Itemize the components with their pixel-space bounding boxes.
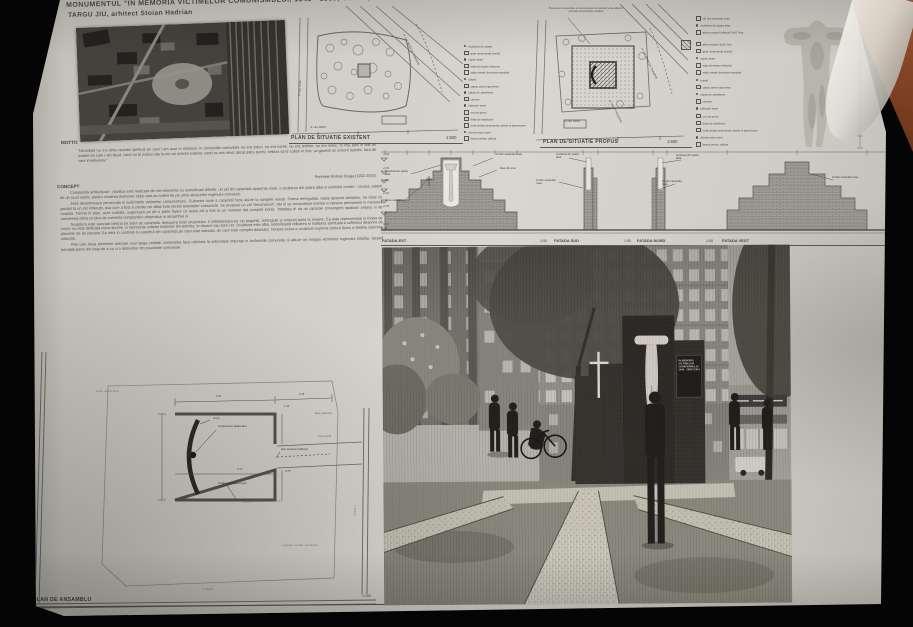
proposed-plan-scale: 1:500 [667,140,677,145]
legend-item: sculptura din piatra [468,44,492,48]
ansamblu-path-top-label: alee asfaltata [96,390,119,393]
legend-item: copac tanar [700,56,715,60]
facade-annotation-wall: zid din caramida rosie [496,153,524,156]
legend-item: rond peisaj ornamental, pietris si asper… [703,128,758,132]
facade-annotation-cross: cruce metalica [385,199,411,202]
facade-sud-scale: 1:50 [624,239,631,243]
legend-item: alee propusa (criblura) 3x61 l/mp [703,31,744,35]
legend-item: stalp metalic iluminare stradala [703,71,741,75]
ansamblu-path-right1-label: alee existenta [315,412,332,415]
legend-item: stalp metalic iluminare stradala [471,71,509,75]
legend-item: directie auto rutier [700,135,722,139]
legend-item: cismea [471,97,480,101]
plaque-text: IN MEMORIA VICTIMELOR COMUNISMULUI 1945 … [679,359,701,372]
ansamblu-sculpture-label: sculptura din piatra alba [218,425,248,428]
legend-item: stalp iluminare electrica [703,63,732,67]
legend-item: copac tanar [468,57,483,61]
ansamblu-title: PLAN DE ANSAMBLU [33,598,92,604]
legend-item: capac de canalizare [468,90,493,94]
legend-item: capac de canalizare [700,92,725,96]
ansamblu-dim: 0.75 [299,393,304,396]
legend-item: banca pentru odihna [703,143,729,147]
legend-item: capac camin apometru [471,84,499,88]
legend-item: cos de gunoi [703,114,719,118]
ansamblu-dim: 4.70 [237,468,242,471]
level-value: ±0.00 [383,223,389,226]
proposed-cad-a: nr. cad. 39261 [564,121,580,124]
ansamblu-scale: 1:100 [362,594,371,598]
proposed-plan-title: PLAN DE SITUATIE PROPUS [543,140,618,146]
existing-plan-scale: 1:500 [446,136,456,141]
legend-item: capac camin apometru [703,85,731,89]
legend-swatch [681,40,691,50]
motto-heading: MOTTO [61,140,78,146]
facade-annotation-wall: zid din caramida rosie [662,180,686,186]
ansamblu-path-proposed-label: alee propusa (criblura) [281,448,311,451]
ansamblu-dim: 1.10 [284,405,289,408]
presentation-sheet: MONUMENTUL "IN MEMORIA VICTIMELOR COMUNI… [0,0,913,627]
facade-est-scale: 1:50 [540,239,547,243]
level-value: +0.45 [383,205,389,208]
level-value: +4.45 [383,153,389,156]
legend-item: gard ornamental (vechi) [471,51,501,55]
ansamblu-green-bottom-label: spatiu verde existent [283,544,318,547]
existing-plan-title: PLAN DE SITUATIE EXISTENT [291,136,370,142]
legend-item: banca pentru odihna [471,137,497,141]
legend-item: rond peisaj ornamental, pietris si asper… [471,123,526,127]
site-plan-proposed-drawing [528,4,688,146]
ansamblu-dim: 2.75 [285,470,290,473]
facade-nord-caption: FATADA NORD [637,239,665,244]
facade-vest-scale: 1:50 [893,239,900,243]
legend-item: cismea [703,99,712,103]
facade-annotation-sculpture: sculptura din piatra alba [676,154,702,160]
concept-heading: CONCEPT [57,184,80,190]
proposed-plan-underline [540,147,692,148]
ansamblu-sidewalk-bottom-label: trotuar [202,588,214,591]
legend-item: gard ornamental (vechi) [703,49,733,53]
photomontage: IN MEMORIA VICTIMELOR COMUNISMULUI 1945 … [382,245,792,606]
photographed-sheet: MONUMENTUL "IN MEMORIA VICTIMELOR COMUNI… [0,0,913,627]
facade-est-caption: FATADA EST [382,239,406,244]
facade-annotation-sculpture: sculptura din piatra alba [556,153,582,159]
motto-attribution: Parintele Roman Braga (1922-2015) [256,174,376,181]
ansamblu-cross-label: cruce [213,417,220,420]
ansamblu-dim: 5.00 [216,395,221,398]
existing-cad-b: nr. cad. 39261 [310,127,326,130]
ansamblu-wall-label: zid din caramida propus [218,482,278,485]
aerial-photo [76,20,289,142]
legend-item: bolard [468,77,476,81]
level-value: +1.50 [383,192,389,195]
ansamblu-drawing [30,352,386,614]
legend-item: directie auto rutier [468,130,490,134]
facade-annotation-letters: litere din inox [500,167,528,170]
plaque-line: 1945 - 1989 GORJ [679,369,701,372]
legend-item: stalp iluminare electrica [471,64,500,68]
level-value: +2.50 [383,179,389,182]
facades-drawing [381,150,908,246]
ansamblu-dim: 0.70 [186,452,191,455]
ansamblu-sidewalk-right-label: trotuar [353,505,356,517]
facade-annotation-sculpture: sculptura din piatra alba [385,170,411,176]
facade-nord-scale: 1:50 [706,239,713,243]
legend-item: firida de distributie [471,117,494,121]
facade-annotation-wall: zid din caramida rosie [832,176,860,179]
legend-item: bolard [700,78,708,82]
legend-item: indicator rutier [700,107,718,111]
facade-vest-caption: FATADA VEST [722,239,749,244]
sheet-title-line2: TARGU JIU, arhitect Stoian Hadrian [68,9,193,20]
legend-item: alee propusa 3x61 l/mp [703,42,732,46]
facade-sud-caption: FATADA SUD [554,239,579,244]
legend-item: cos de gunoi [471,110,487,114]
proposed-plan-note: Propunere de amenajare a monumentului si… [548,8,624,14]
legend-item: indicator rutier [468,104,486,108]
motto-quote: "Niciodata nu s-a atins resortul spiritu… [78,143,376,164]
ansamblu-path-right2-label: zona verde [318,435,331,438]
site-plan-existing-drawing [288,6,463,138]
legend-item: zid din caramida rosie [703,16,730,20]
concept-text: Compozitia arhitectural - plastica este … [60,184,383,253]
facade-annotation-wall: zid din caramida rosie [536,179,560,185]
facade-vest-wall [727,162,867,230]
legend-item: firida de distributie [703,121,726,125]
legend-item: sculptura din piatra alba [700,23,730,27]
